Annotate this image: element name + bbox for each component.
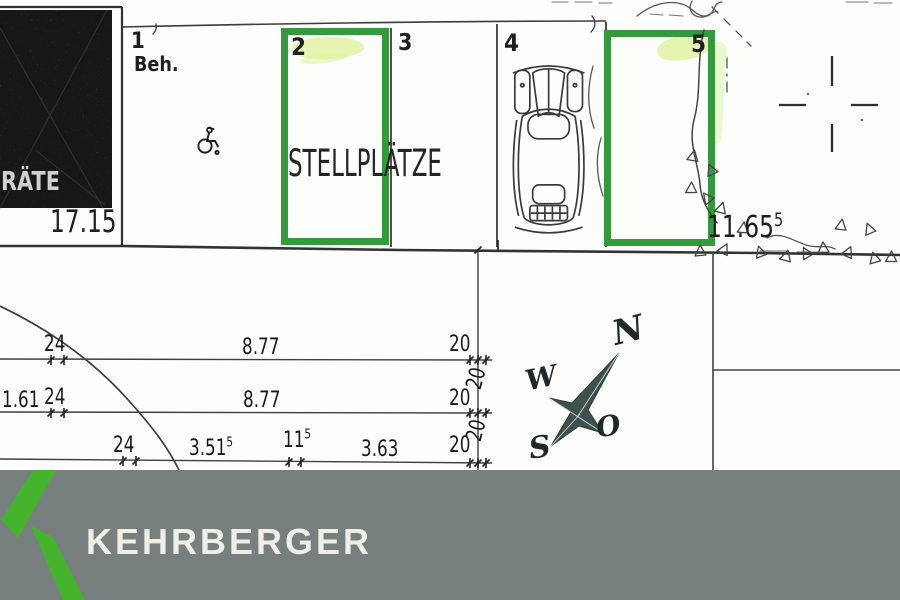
- space-5-number: 5: [691, 32, 706, 56]
- space-1-note: Beh.: [134, 54, 179, 74]
- compass-west-label: W: [523, 361, 560, 395]
- dim-label: 20: [449, 333, 470, 355]
- space-1-number: 1: [131, 31, 145, 53]
- brand-wordmark: KEHRBERGER: [86, 521, 372, 563]
- dim-label: 115: [283, 428, 311, 451]
- dim-label: 1.61: [2, 389, 39, 411]
- dim-label: 3.63: [361, 438, 398, 460]
- compass-south-label: S: [527, 432, 553, 465]
- dim-label: 20: [449, 387, 470, 409]
- dim-label: 8.77: [242, 336, 279, 358]
- dim-label: 8.77: [243, 389, 280, 411]
- right-dimension-sup: 5: [774, 210, 783, 231]
- space-3-number: 3: [398, 32, 412, 55]
- right-dimension-base: 11.65: [707, 210, 774, 245]
- space-2-number: 2: [291, 35, 306, 59]
- vegetation-marks: [686, 149, 898, 264]
- space-4-number: 4: [504, 31, 519, 55]
- site-plan-page: RÄTE 17.15 1 Beh. 2 3 4 5 STELLPLÄTZE 11…: [0, 0, 900, 600]
- storage-width-dimension: 17.15: [50, 207, 117, 238]
- compass-east-label: O: [594, 411, 623, 443]
- dim-label: 3.515: [189, 436, 233, 459]
- dim-label: 24: [44, 333, 65, 355]
- dim-label: 24: [113, 434, 134, 456]
- survey-cross-icon: [779, 56, 878, 152]
- storage-block-label: RÄTE: [1, 169, 60, 195]
- dim-label: 24: [44, 386, 65, 408]
- right-dimension: 11.655: [707, 212, 783, 243]
- row-label: STELLPLÄTZE: [288, 145, 442, 182]
